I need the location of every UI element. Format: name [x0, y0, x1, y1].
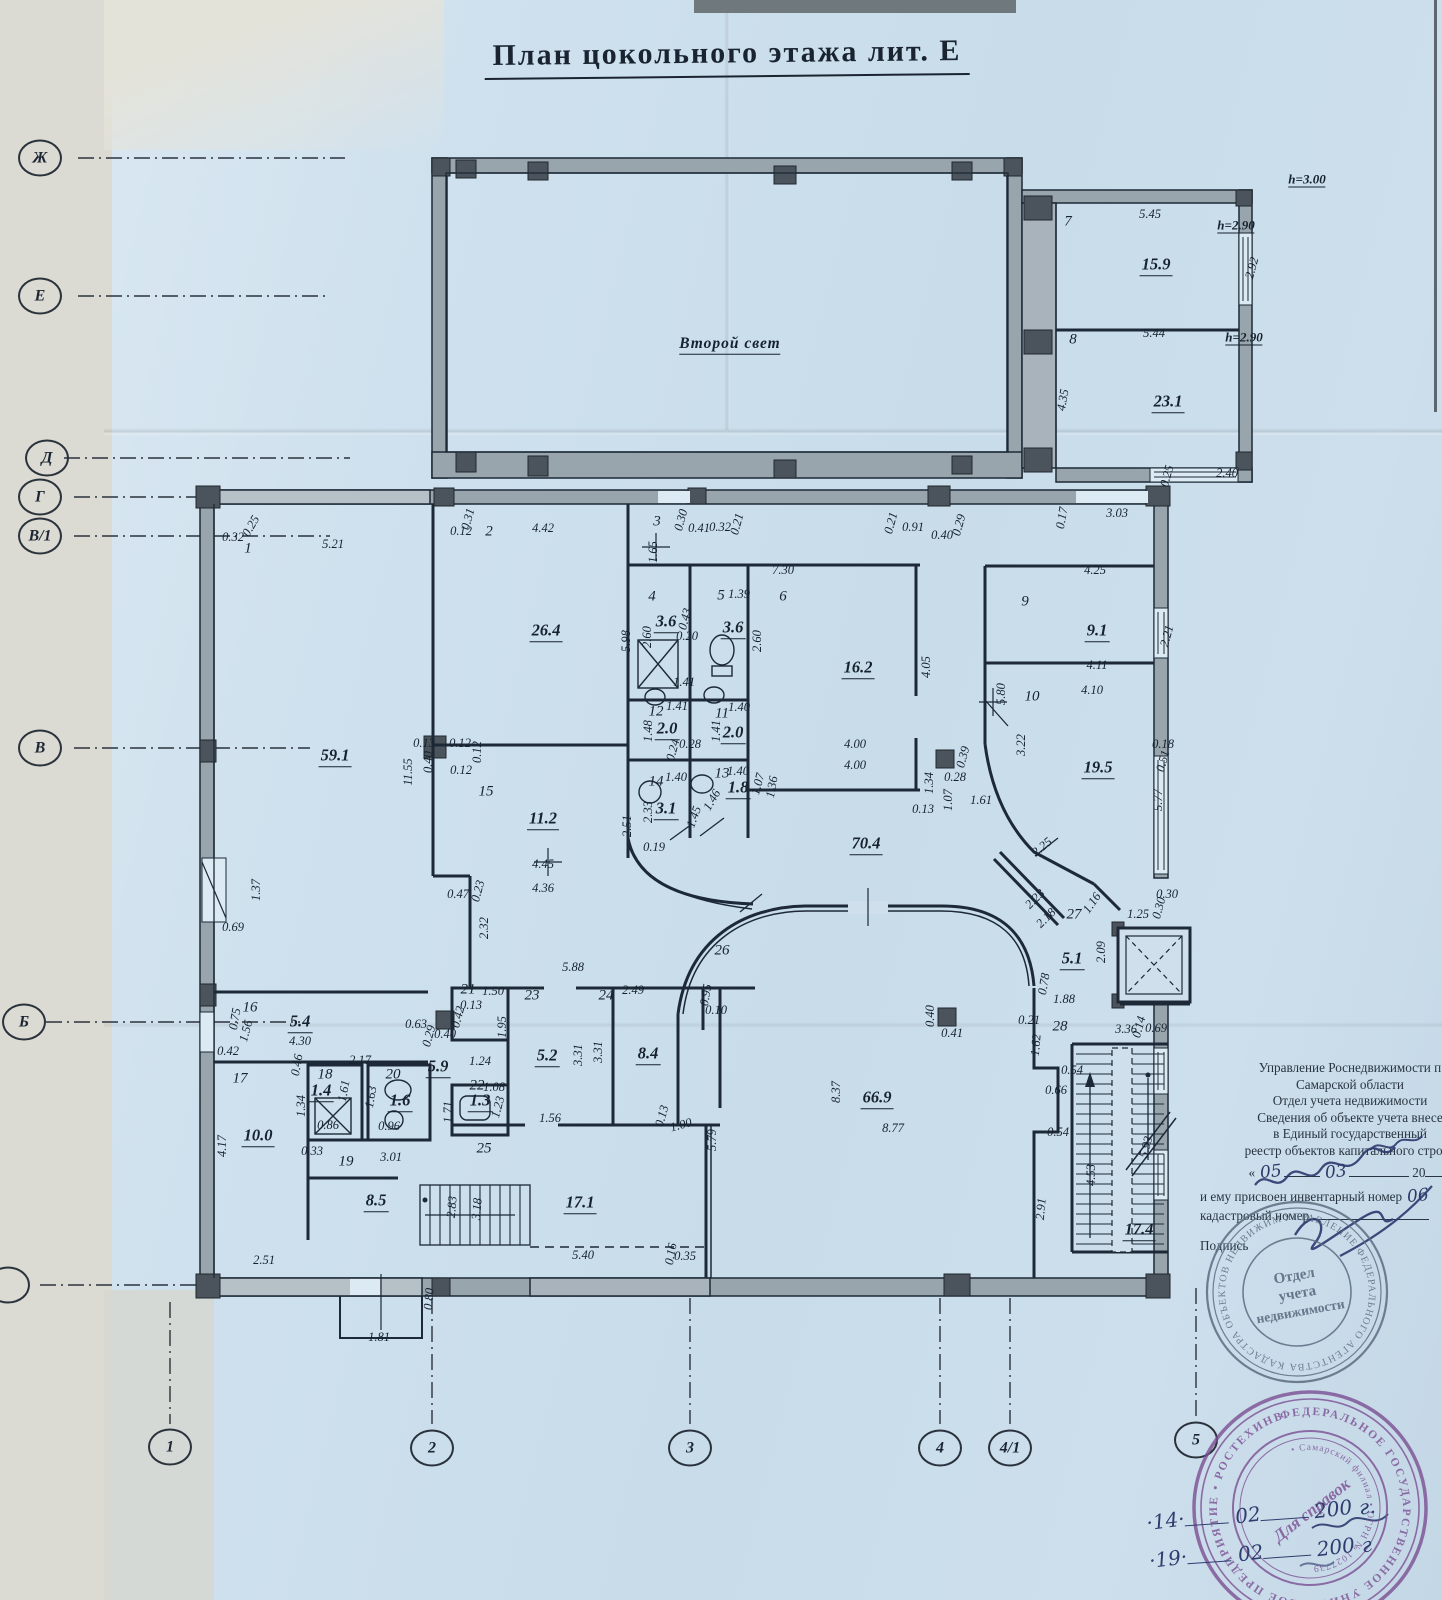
plan-label: 9.1 — [1085, 622, 1110, 642]
note-line: в Единый государственный — [1200, 1126, 1442, 1143]
plan-label: 23 — [525, 989, 540, 1004]
plan-label: 8 — [1069, 333, 1077, 348]
year-prefix: 20 — [1412, 1165, 1425, 1180]
plan-label: h=3.00 — [1288, 173, 1325, 188]
plan-label: h=2.90 — [1225, 331, 1262, 346]
axis-circle: 4/1 — [988, 1430, 1032, 1467]
plan-label: 1.95 — [496, 1016, 509, 1038]
plan-label: 8.77 — [882, 1122, 904, 1135]
plan-label: 5.4 — [288, 1013, 313, 1033]
plan-label: 15.9 — [1140, 256, 1173, 276]
plan-label: 6 — [779, 590, 787, 605]
plan-label: 1.4 — [309, 1082, 334, 1102]
plan-label: 2.51 — [253, 1254, 275, 1267]
plan-label: 3.6 — [721, 619, 746, 639]
plan-label: 1.40 — [665, 771, 687, 784]
plan-label: 0.91 — [902, 521, 924, 534]
plan-label: 1.62 — [1029, 1034, 1043, 1057]
plan-label: 2.51 — [621, 815, 634, 837]
plan-label: 5.21 — [322, 538, 344, 551]
plan-label: 16 — [243, 1001, 258, 1016]
plan-label: 4.36 — [532, 882, 554, 895]
plan-label: 15 — [479, 785, 494, 800]
cadastral-number-line: кадастровый номер — [1200, 1206, 1442, 1225]
plan-label: 11.2 — [527, 810, 559, 830]
plan-label: 1.41 — [666, 700, 688, 713]
plan-label: 2.91 — [1034, 1198, 1048, 1221]
plan-label: 5.2 — [535, 1047, 560, 1067]
plan-label: 3.03 — [1106, 507, 1128, 520]
note-line: Управление Роснедвижимости п — [1200, 1060, 1442, 1077]
plan-label: 0.69 — [1145, 1022, 1167, 1035]
plan-label: 4.05 — [920, 656, 933, 678]
plan-label: 0.13 — [413, 737, 435, 750]
plan-label: 1.61 — [970, 794, 992, 807]
axis-circle: 1 — [148, 1429, 192, 1466]
plan-label: 25 — [477, 1142, 492, 1157]
plan-label: 3 — [653, 515, 661, 530]
plan-label: 3.31 — [592, 1041, 605, 1063]
plan-label: 2 — [485, 525, 493, 540]
plan-label: 2.09 — [1095, 941, 1108, 963]
scanned-floor-plan-page: План цокольного этажа лит. Е Второй свет… — [0, 0, 1442, 1600]
plan-label: 4.45 — [532, 858, 554, 871]
plan-label: 2.0 — [721, 724, 746, 744]
plan-label: 0.86 — [317, 1119, 339, 1132]
plan-label: 2.60 — [641, 626, 654, 648]
plan-label: 1.40 — [728, 701, 750, 714]
handwritten-inventory-number: 06 — [1406, 1184, 1430, 1206]
plan-label: 11.55 — [402, 758, 415, 785]
plan-label: 9 — [1021, 595, 1029, 610]
plan-label: 3.6 — [654, 613, 679, 633]
floor-plan-drawing — [0, 0, 1442, 1600]
plan-label: 1.6 — [388, 1092, 413, 1112]
plan-label: 19 — [339, 1155, 354, 1170]
plan-label: 0.41 — [688, 522, 710, 535]
plan-label: 1.39 — [728, 588, 750, 601]
plan-label: 16.2 — [842, 659, 875, 679]
plan-label: 5.80 — [995, 683, 1008, 705]
inventory-number-line: и ему присвоен инвентарный номер 06 — [1200, 1186, 1442, 1206]
handwritten-month: 03 — [1324, 1160, 1348, 1182]
plan-label: 7.30 — [772, 564, 794, 577]
plan-label: 0.28 — [944, 771, 966, 784]
plan-label: 2.33 — [642, 801, 655, 823]
plan-label: 0.12 — [471, 741, 484, 763]
plan-label: 26 — [715, 944, 730, 959]
plan-label: 4 — [648, 590, 656, 605]
plan-label: 4.30 — [289, 1035, 311, 1048]
plan-label: 2.60 — [751, 630, 764, 652]
plan-label: 17 — [233, 1072, 248, 1087]
plan-label: 8.37 — [830, 1081, 843, 1103]
plan-label: 66.9 — [861, 1089, 894, 1109]
axis-circle: Д — [25, 440, 69, 477]
plan-label: 1.81 — [368, 1331, 390, 1344]
plan-label: 21 — [461, 983, 476, 998]
plan-label: 4.10 — [1081, 684, 1103, 697]
plan-label: Второй свет — [679, 336, 780, 355]
plan-label: 0.40 — [422, 751, 435, 773]
registry-note: Управление Роснедвижимости п Самарской о… — [1200, 1060, 1442, 1255]
plan-label: 17.4 — [1123, 1221, 1156, 1241]
axis-circle: В — [18, 730, 62, 767]
plan-label: 4.00 — [844, 738, 866, 751]
elevator-icon — [1118, 928, 1190, 1002]
plan-label: 5.40 — [572, 1249, 594, 1262]
plan-label: 19.5 — [1082, 759, 1115, 779]
plan-label: 1.25 — [1127, 908, 1149, 921]
plan-label: 4.17 — [216, 1135, 229, 1157]
plan-label: 2.32 — [478, 917, 491, 939]
plan-label: 4.00 — [844, 759, 866, 772]
plan-label: 0.54 — [1047, 1126, 1069, 1139]
page-title: План цокольного этажа лит. Е — [484, 34, 969, 80]
plan-label: 0.35 — [674, 1250, 696, 1263]
plan-label: 5.1 — [1060, 950, 1085, 970]
plan-label: 12 — [649, 705, 664, 720]
plan-label: 70.4 — [850, 835, 883, 855]
plan-label: 5.9 — [426, 1058, 451, 1078]
plan-label: 20 — [386, 1068, 401, 1083]
plan-label: 8.4 — [636, 1045, 661, 1065]
signature-line: Подпись — [1200, 1238, 1442, 1255]
plan-label: 2.0 — [655, 720, 680, 740]
plan-label: 4.42 — [532, 522, 554, 535]
plan-label: 2.40 — [1216, 467, 1238, 480]
plan-label: 2.17 — [349, 1054, 371, 1067]
date-entry: ·19· 02 200 г — [1148, 1532, 1378, 1572]
plan-label: 0.40 — [434, 1028, 456, 1041]
plan-label: 24 — [599, 989, 614, 1004]
plan-label: 8.5 — [364, 1192, 389, 1212]
axis-circle: Г — [18, 479, 62, 516]
plan-label: 5.88 — [562, 961, 584, 974]
plan-label: 0.10 — [705, 1004, 727, 1017]
toilet-icon — [710, 635, 734, 676]
plan-label: 4.53 — [1085, 1164, 1098, 1186]
plan-label: 0.47 — [447, 888, 469, 901]
plan-label: 0.42 — [217, 1045, 239, 1058]
axis-circle: Б — [2, 1004, 46, 1041]
plan-label: 5.98 — [620, 630, 633, 652]
plan-label: 7 — [1064, 215, 1072, 230]
handwritten-dates: ·14· 02 200 г. ·19· 02 200 г — [1146, 1494, 1380, 1586]
wall-inner-lines — [214, 173, 1056, 1278]
plan-label: 0.41 — [941, 1027, 963, 1040]
plan-label: 0.30 — [1156, 888, 1178, 901]
plan-label: 23.1 — [1152, 393, 1185, 413]
small-stairs-icon — [420, 1185, 705, 1247]
plan-label: 10.0 — [242, 1127, 275, 1147]
plan-label: 0.13 — [912, 803, 934, 816]
plan-label: 0.96 — [378, 1120, 400, 1133]
form-date-line: « 05 03 20 — [1200, 1162, 1442, 1182]
note-line: Самарской области — [1200, 1077, 1442, 1094]
quote-mark: « — [1249, 1165, 1256, 1180]
axis-circle: 2 — [410, 1430, 454, 1467]
plan-label: 5.45 — [1139, 208, 1161, 221]
axis-circle: 4 — [918, 1430, 962, 1467]
plan-label: 1.3 — [468, 1092, 493, 1112]
plan-label: 0.19 — [643, 841, 665, 854]
plan-label: 1.50 — [482, 985, 504, 998]
plan-label: 0.18 — [1152, 738, 1174, 751]
plan-label: 1.37 — [250, 879, 263, 901]
plan-label: 0.12 — [450, 764, 472, 777]
plan-label: 0.21 — [1018, 1014, 1040, 1027]
handwritten-day: 05 — [1259, 1160, 1283, 1182]
note-line: Отдел учета недвижимости — [1200, 1093, 1442, 1110]
plan-label: 14 — [649, 775, 664, 790]
plan-label: 1 — [244, 542, 252, 557]
axis-circle: В/1 — [18, 518, 62, 555]
plan-label: 3.01 — [380, 1151, 402, 1164]
plan-label: 1.41 — [710, 720, 723, 742]
plan-label: 1.48 — [642, 720, 655, 742]
note-line: реестр объектов капитального строит — [1200, 1143, 1442, 1160]
plan-label: 0.40 — [924, 1005, 937, 1027]
plan-label: 0.54 — [1061, 1064, 1083, 1077]
axis-circle: Е — [18, 278, 62, 315]
plan-label: 3.31 — [572, 1044, 585, 1066]
plan-label: 1.24 — [469, 1055, 491, 1068]
plan-label: 5.44 — [1143, 327, 1165, 340]
plan-label: 27 — [1067, 908, 1082, 923]
plan-label: 3.22 — [1015, 734, 1028, 756]
plan-label: 28 — [1053, 1020, 1068, 1035]
plan-label: 1.41 — [673, 676, 695, 689]
plan-label: 4.11 — [1087, 659, 1108, 672]
plan-label: 1.40 — [727, 765, 749, 778]
plan-label: 2.49 — [622, 984, 644, 997]
plan-label: 1.65 — [647, 541, 660, 563]
plan-label: 1.34 — [923, 772, 936, 794]
plan-label: 1.07 — [942, 789, 955, 811]
plan-label: 59.1 — [319, 747, 352, 767]
plan-label: 1.71 — [442, 1101, 455, 1123]
plan-label: 1.56 — [539, 1112, 561, 1125]
plan-label: 4.25 — [1084, 564, 1106, 577]
plan-label: 1.88 — [1053, 993, 1075, 1006]
plan-label: 0.69 — [222, 921, 244, 934]
plan-label: 1.8 — [726, 779, 751, 799]
plan-label: 0.12 — [449, 737, 471, 750]
plan-label: 5.79 — [706, 1129, 719, 1151]
axis-circle: 5 — [1174, 1422, 1218, 1459]
plan-label: 0.66 — [1045, 1084, 1067, 1097]
note-line: Сведения об объекте учета внесе — [1200, 1110, 1442, 1127]
plan-label: 5 — [717, 589, 725, 604]
plan-label: 0.80 — [422, 1288, 436, 1311]
plan-label: 1.34 — [295, 1095, 308, 1117]
plan-label: 10 — [1025, 690, 1040, 705]
plan-label: 0.33 — [301, 1145, 323, 1158]
plan-label: 3.18 — [470, 1198, 484, 1221]
plan-label: 2.83 — [445, 1196, 459, 1219]
plan-label: 0.28 — [679, 738, 701, 751]
plan-label: 3.1 — [654, 800, 679, 820]
axis-circle: Ж — [18, 140, 62, 177]
plan-label: 26.4 — [530, 622, 563, 642]
plan-label: 5.77 — [1152, 789, 1165, 811]
axis-circle: 3 — [668, 1430, 712, 1467]
plan-label: 0.20 — [676, 630, 698, 643]
plan-label: 17.1 — [564, 1194, 597, 1214]
plan-label: h=2.90 — [1217, 219, 1254, 234]
